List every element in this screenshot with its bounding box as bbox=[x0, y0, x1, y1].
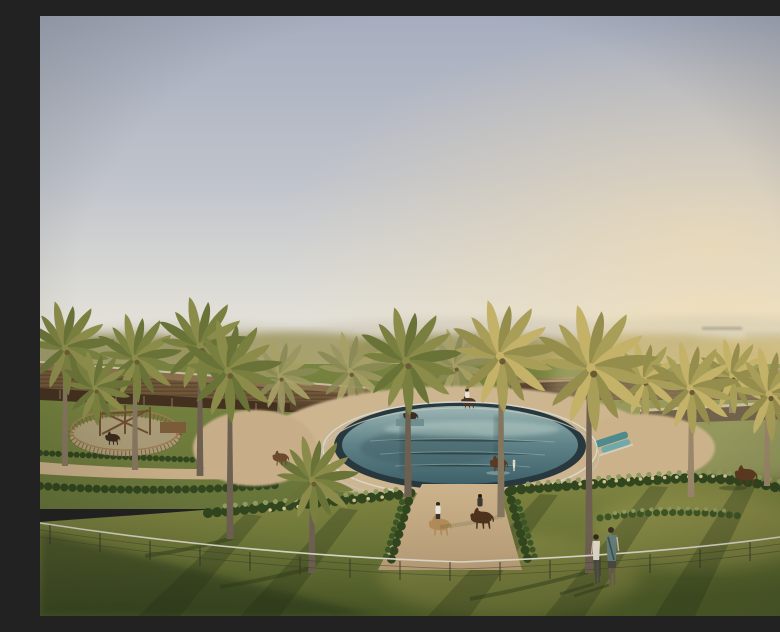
scene-canvas bbox=[40, 16, 780, 616]
vignette bbox=[40, 16, 780, 616]
rendered-scene: Aerial golden-hour rendering of an eques… bbox=[40, 16, 780, 616]
